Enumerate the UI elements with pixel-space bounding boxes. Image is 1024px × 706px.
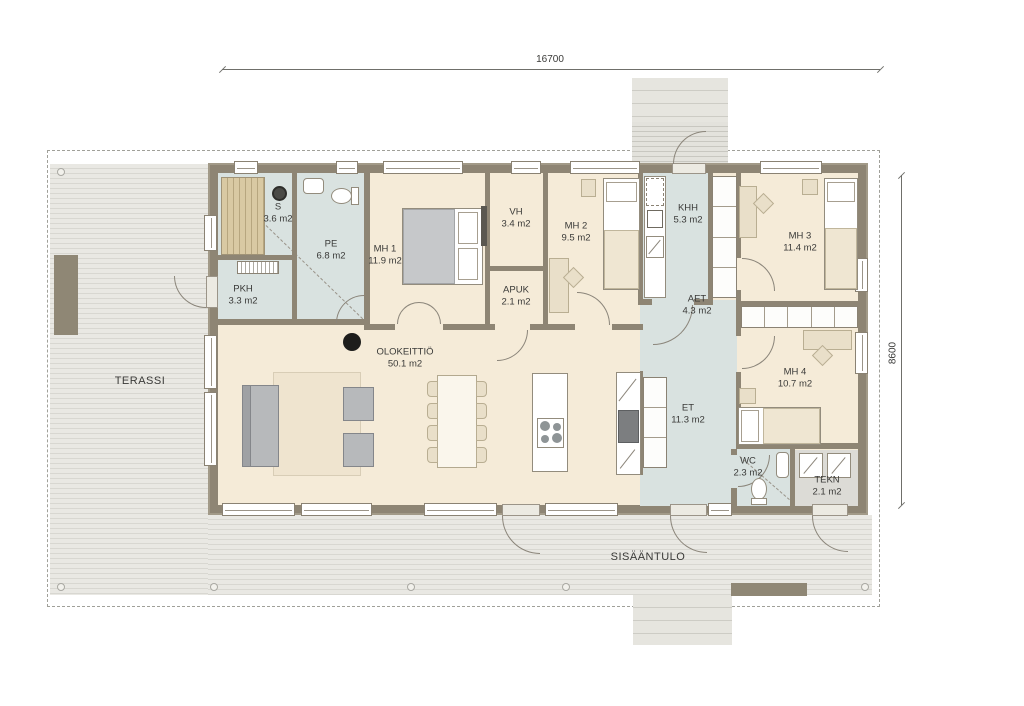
khh-fridge	[646, 178, 664, 206]
closet-section	[713, 177, 736, 207]
wall	[490, 266, 545, 271]
room-name: MH 1	[374, 244, 397, 255]
room-label-mh4: MH 4 10.7 m2	[778, 367, 812, 390]
wall	[292, 173, 297, 260]
bed-blanket	[604, 230, 639, 289]
window	[424, 503, 497, 516]
room-name: APUK	[503, 285, 529, 296]
room-area: 6.8 m2	[316, 250, 345, 261]
window	[234, 161, 258, 174]
washbasin	[776, 452, 789, 478]
walkway-bottom	[633, 595, 732, 645]
room-area: 2.3 m2	[733, 467, 762, 478]
oven	[618, 410, 639, 443]
window	[855, 332, 868, 374]
room-label-et: ET 11.3 m2	[671, 403, 705, 426]
room-label-vh: VH 3.4 m2	[501, 207, 530, 230]
khh-sink	[647, 210, 663, 228]
bed-pillow	[827, 182, 855, 202]
deck-post	[57, 168, 65, 176]
shelf	[802, 179, 818, 195]
bed-pillow	[606, 182, 637, 202]
dimension-line-width	[222, 69, 880, 70]
burner-icon	[552, 433, 562, 443]
room-area: 2.1 m2	[812, 486, 841, 497]
closet-section	[742, 307, 765, 327]
shelf	[581, 179, 596, 197]
bed-blanket	[825, 228, 857, 289]
closet-section	[765, 307, 788, 327]
room-name: AET	[688, 294, 706, 305]
room-label-wc: WC 2.3 m2	[733, 456, 762, 479]
room-area: 11.3 m2	[671, 414, 705, 425]
dining-table	[437, 375, 477, 468]
dimension-width-label: 16700	[536, 54, 564, 65]
walkway-top	[632, 78, 728, 122]
room-label-mh2: MH 2 9.5 m2	[561, 221, 590, 244]
dimension-tick	[898, 502, 905, 509]
room-area: 11.9 m2	[368, 255, 402, 266]
room-name: S	[275, 202, 281, 213]
tekn-door	[812, 504, 848, 516]
wall	[731, 449, 737, 455]
deck-post	[562, 583, 570, 591]
window	[204, 335, 217, 389]
dining-chair	[476, 447, 487, 463]
closet-section	[713, 207, 736, 237]
room-label-mh1: MH 1 11.9 m2	[368, 244, 402, 267]
closet-section	[644, 408, 666, 438]
wall	[370, 324, 395, 330]
dimension-tick	[877, 66, 884, 73]
window	[222, 503, 295, 516]
closet-section	[644, 438, 666, 467]
room-label-s: S 3.6 m2	[263, 202, 292, 225]
wall	[638, 299, 652, 305]
wall	[485, 173, 490, 330]
room-area: 50.1 m2	[388, 358, 422, 369]
room-area: 4.3 m2	[682, 305, 711, 316]
window	[204, 392, 217, 466]
toilet-tank	[351, 187, 359, 205]
closet-section	[835, 307, 857, 327]
burner-icon	[553, 423, 561, 431]
room-area: 11.4 m2	[783, 242, 817, 253]
sauna-bench	[221, 177, 265, 255]
closet-section	[713, 238, 736, 268]
armchair	[343, 433, 374, 467]
terrace-label: TERASSI	[115, 375, 166, 387]
wardrobe-row	[741, 306, 858, 328]
dining-chair	[476, 425, 487, 441]
wall	[543, 173, 548, 330]
window	[570, 161, 640, 174]
pkh-terrace-door	[206, 276, 218, 308]
bed-blanket	[763, 408, 820, 444]
room-name: OLOKEITTIÖ	[376, 347, 433, 358]
hall-closet	[712, 176, 737, 298]
window	[383, 161, 463, 174]
room-name: MH 4	[784, 367, 807, 378]
room-name: MH 3	[789, 231, 812, 242]
bed-pillow	[458, 212, 478, 244]
window	[336, 161, 358, 174]
dining-chair	[427, 403, 438, 419]
room-label-aet: AET 4.3 m2	[682, 294, 711, 317]
room-area: 3.3 m2	[228, 295, 257, 306]
room-name: WC	[740, 456, 756, 467]
nightstand	[739, 388, 756, 404]
dining-chair	[427, 447, 438, 463]
armchair	[343, 387, 374, 421]
floor-plan: S 3.6 m2 PE 6.8 m2 PKH 3.3 m2 MH 1 11.9 …	[0, 0, 1024, 706]
room-label-pkh: PKH 3.3 m2	[228, 284, 257, 307]
window	[301, 503, 372, 516]
washbasin	[303, 178, 324, 194]
et-closet	[643, 377, 667, 468]
burner-icon	[541, 435, 549, 443]
toilet	[751, 478, 767, 500]
back-door	[672, 163, 706, 174]
window	[708, 503, 732, 516]
dining-chair	[427, 381, 438, 397]
room-area: 9.5 m2	[561, 232, 590, 243]
closet-section	[713, 268, 736, 297]
room-name: PKH	[233, 284, 253, 295]
entrance-door	[670, 504, 707, 516]
closet-section	[788, 307, 811, 327]
room-name: KHH	[678, 203, 698, 214]
entrance-step	[731, 583, 807, 596]
fireplace-icon	[343, 333, 361, 351]
room-name: PE	[325, 239, 338, 250]
room-label-pe: PE 6.8 m2	[316, 239, 345, 262]
burner-icon	[540, 421, 550, 431]
deck-post	[407, 583, 415, 591]
sauna-heater-icon	[272, 186, 287, 201]
room-area: 3.4 m2	[501, 218, 530, 229]
desk	[739, 186, 757, 238]
window	[760, 161, 822, 174]
room-area: 5.3 m2	[673, 214, 702, 225]
room-label-khh: KHH 5.3 m2	[673, 203, 702, 226]
deck-post	[210, 583, 218, 591]
dining-chair	[476, 403, 487, 419]
entrance-label: SISÄÄNTULO	[611, 551, 686, 563]
terrace-bench	[54, 255, 78, 335]
room-area: 10.7 m2	[778, 378, 812, 389]
pkh-bench	[237, 261, 279, 274]
closet-section	[644, 378, 666, 408]
deck-post	[57, 583, 65, 591]
wall	[218, 255, 297, 260]
wall	[292, 260, 297, 324]
window	[511, 161, 541, 174]
desk	[803, 330, 852, 350]
room-label-mh3: MH 3 11.4 m2	[783, 231, 817, 254]
terrace-door	[502, 504, 540, 516]
deck-post	[861, 583, 869, 591]
room-area: 2.1 m2	[501, 296, 530, 307]
desk	[549, 258, 569, 313]
room-name: MH 2	[565, 221, 588, 232]
dining-chair	[427, 425, 438, 441]
toilet-tank	[751, 498, 767, 505]
closet-section	[812, 307, 835, 327]
bed-duvet	[403, 209, 455, 284]
room-name: TEKN	[814, 475, 839, 486]
room-label-olokeittio: OLOKEITTIÖ 50.1 m2	[376, 347, 433, 370]
toilet	[331, 188, 352, 204]
sofa-back	[242, 385, 251, 467]
room-name: ET	[682, 403, 694, 414]
bed-pillow	[458, 248, 478, 280]
wall	[612, 324, 643, 330]
room-label-apuk: APUK 2.1 m2	[501, 285, 530, 308]
wall	[530, 324, 575, 330]
dimension-height-label: 8600	[888, 342, 899, 364]
bed-pillow	[741, 410, 759, 442]
room-name: VH	[509, 207, 522, 218]
room-area: 3.6 m2	[263, 213, 292, 224]
wall	[790, 449, 795, 506]
wardrobe-mh1	[481, 206, 487, 246]
wall	[443, 324, 495, 330]
window	[545, 503, 618, 516]
window	[204, 215, 217, 251]
dining-chair	[476, 381, 487, 397]
dimension-line-height	[901, 175, 902, 505]
room-label-tekn: TEKN 2.1 m2	[812, 475, 841, 498]
